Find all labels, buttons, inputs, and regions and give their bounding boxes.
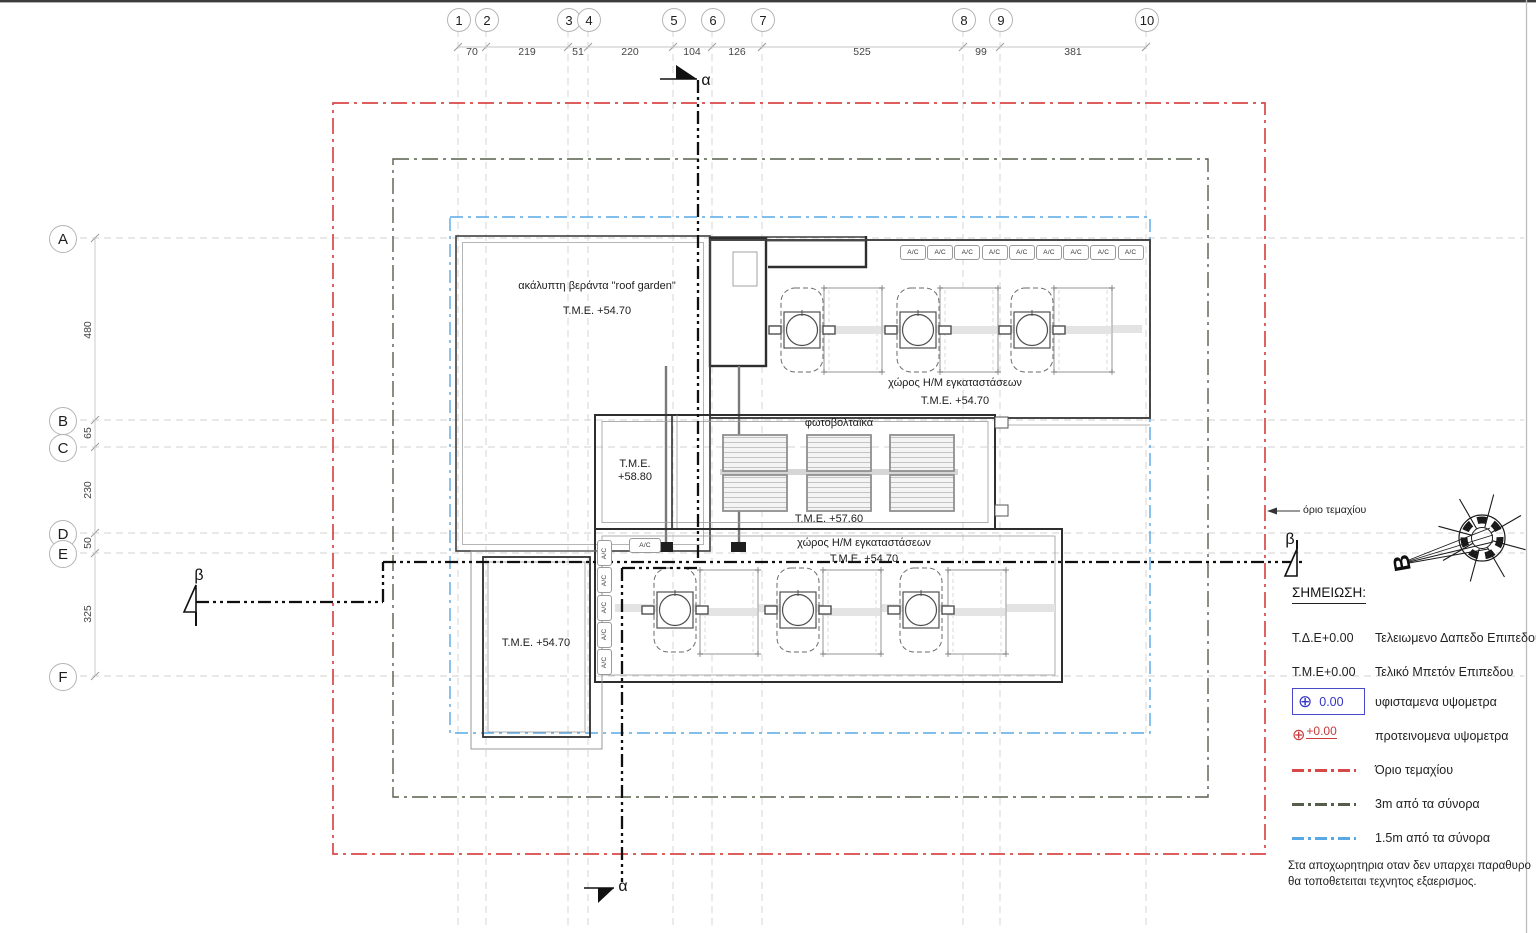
legend-desc-tme: Τελικό Μπετόν Επιπεδου [1375,665,1513,679]
legend-title: ΣΗΜΕΙΩΣΗ: [1292,585,1366,604]
legend-desc-tde: Τελειωμενο Δαπεδο Επιπεδου [1375,631,1536,645]
legend-note-line-2: θα τοποθετειται τεχνητος εξαερισμος. [1288,876,1477,888]
roof-plan-drawing: ακάλυπτη βεράντα "roof garden" Τ.Μ.Ε. +5… [0,0,1536,933]
legend-desc-plot-boundary: Όριο τεμαχίου [1375,763,1453,777]
legend: ΣΗΜΕΙΩΣΗ: Τ.Δ.Ε+0.00 Τελειωμενο Δαπεδο Ε… [0,0,1536,933]
legend-sample-3m-offset [1292,803,1356,806]
legend-note-line-1: Στα αποχωρητηρια οταν δεν υπαρχει παραθυ… [1288,860,1531,872]
legend-key-tme: Τ.Μ.Ε+0.00 [1292,665,1356,679]
legend-desc-3m-offset: 3m από τα σύνορα [1375,797,1480,811]
legend-desc-existing: υφισταμενα υψομετρα [1375,695,1497,709]
proposed-elevation-value: +0.00 [1306,724,1336,739]
legend-desc-1-5m-offset: 1.5m από τα σύνορα [1375,831,1490,845]
existing-elevation-value: 0.00 [1319,695,1343,709]
legend-key-tde: Τ.Δ.Ε+0.00 [1292,631,1354,645]
existing-elevation-symbol: ⊕0.00 [1292,688,1365,715]
legend-sample-1-5m-offset [1292,837,1356,840]
crosshair-circle-icon: ⊕ [1292,727,1305,744]
legend-sample-plot-boundary [1292,769,1356,772]
proposed-elevation-symbol: ⊕+0.00 [1292,727,1336,745]
crosshair-circle-icon: ⊕ [1298,693,1312,710]
legend-desc-proposed: προτεινομενα υψομετρα [1375,729,1508,743]
